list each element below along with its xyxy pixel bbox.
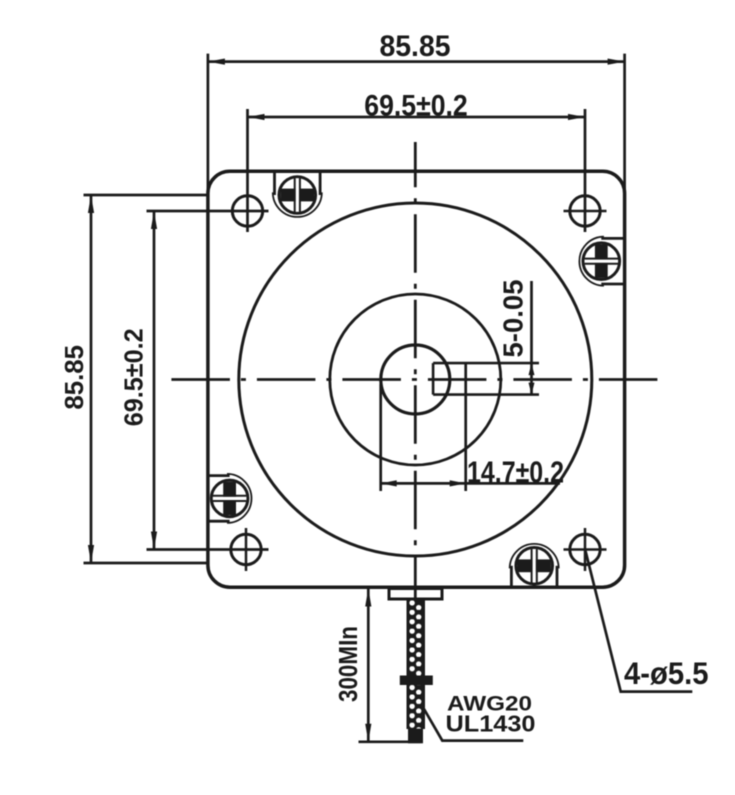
svg-text:4-ø5.5: 4-ø5.5 [624,655,709,691]
svg-text:85.85: 85.85 [59,345,89,410]
svg-text:69.5±0.2: 69.5±0.2 [119,328,149,426]
svg-text:14.7±0.2: 14.7±0.2 [467,455,564,490]
svg-text:UL1430: UL1430 [446,711,536,737]
svg-text:85.85: 85.85 [380,30,451,63]
svg-text:300MIn: 300MIn [335,626,363,702]
svg-text:69.5±0.2: 69.5±0.2 [364,89,468,122]
svg-text:5-0.05: 5-0.05 [498,280,529,358]
